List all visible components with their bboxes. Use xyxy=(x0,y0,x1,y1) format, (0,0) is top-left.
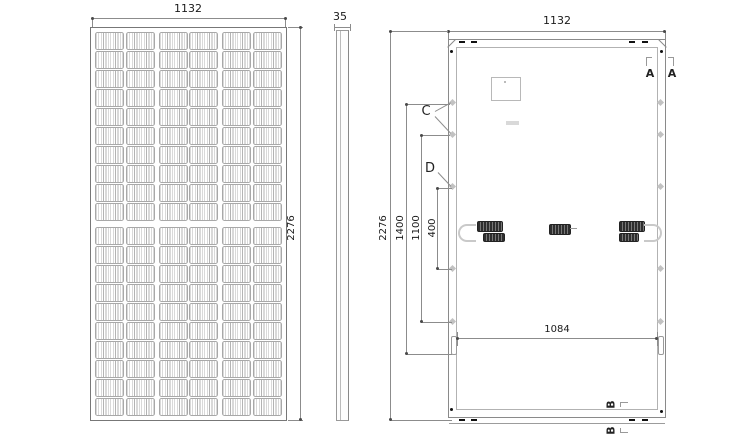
dim-extension xyxy=(421,135,450,136)
solar-cell xyxy=(159,341,188,359)
dim-tick xyxy=(389,418,392,421)
solar-cell xyxy=(222,146,251,164)
section-bracket xyxy=(668,57,674,66)
solar-cell xyxy=(126,146,155,164)
cell-row xyxy=(95,322,282,340)
mounting-slot xyxy=(642,419,648,421)
solar-cell xyxy=(95,379,124,397)
solar-cell xyxy=(189,146,218,164)
solar-cell xyxy=(222,70,251,88)
solar-cell xyxy=(159,108,188,126)
cell-row xyxy=(95,32,282,50)
dim-tick xyxy=(456,337,459,340)
solar-cell xyxy=(253,146,282,164)
solar-cell xyxy=(253,32,282,50)
solar-cell xyxy=(189,379,218,397)
solar-cell xyxy=(95,108,124,126)
section-label-a: A xyxy=(666,67,678,80)
dim-tick xyxy=(420,134,423,137)
dim-extension xyxy=(406,354,452,355)
solar-cell xyxy=(126,165,155,183)
dim-tick xyxy=(405,103,408,106)
solar-cell xyxy=(189,89,218,107)
dim-tick xyxy=(436,187,439,190)
mounting-slot xyxy=(629,41,635,43)
cell-row xyxy=(95,246,282,264)
solar-cell xyxy=(126,341,155,359)
solar-cell xyxy=(126,127,155,145)
solar-cell xyxy=(95,127,124,145)
solar-cell xyxy=(222,303,251,321)
solar-cell xyxy=(222,227,251,245)
cell-row xyxy=(95,203,282,221)
solar-cell xyxy=(159,70,188,88)
solar-cell xyxy=(222,108,251,126)
mc4-connector xyxy=(619,221,645,232)
solar-cell xyxy=(159,360,188,378)
side-thickness-dimension: 35 xyxy=(328,10,352,23)
cell-grid xyxy=(95,32,282,416)
mounting-slot xyxy=(629,419,635,421)
mounting-slot xyxy=(471,41,477,43)
cell-row xyxy=(95,184,282,202)
solar-cell xyxy=(159,265,188,283)
solar-cell xyxy=(159,284,188,302)
solar-cell xyxy=(126,203,155,221)
solar-cell xyxy=(253,227,282,245)
solar-cell xyxy=(222,51,251,69)
dim-1084-line xyxy=(457,338,658,339)
solar-cell xyxy=(95,184,124,202)
solar-cell xyxy=(159,227,188,245)
solar-cell xyxy=(189,127,218,145)
solar-cell xyxy=(189,51,218,69)
solar-cell xyxy=(253,127,282,145)
solar-cell xyxy=(222,184,251,202)
mc4-connector xyxy=(477,221,503,232)
solar-cell xyxy=(253,398,282,416)
dim-1100-label: 1100 xyxy=(411,208,423,248)
solar-cell xyxy=(126,70,155,88)
mounting-slot-long xyxy=(658,336,664,355)
front-width-dimension: 1132 xyxy=(161,2,215,15)
solar-cell xyxy=(95,265,124,283)
solar-cell xyxy=(253,265,282,283)
solar-cell xyxy=(159,146,188,164)
solar-cell xyxy=(222,32,251,50)
dim-extension xyxy=(334,24,335,31)
solar-cell xyxy=(159,398,188,416)
back-width-dimension: 1132 xyxy=(529,14,585,27)
cell-row xyxy=(95,398,282,416)
junction-box xyxy=(491,77,521,101)
solar-cell xyxy=(159,127,188,145)
detail-label-c: C xyxy=(419,104,433,119)
cable-loop xyxy=(458,224,476,242)
solar-cell xyxy=(189,284,218,302)
solar-cell xyxy=(189,303,218,321)
cell-row xyxy=(95,341,282,359)
solar-panel-technical-drawing: 1132 2276 35 1132 xyxy=(0,0,750,440)
solar-cell xyxy=(189,184,218,202)
solar-cell xyxy=(253,184,282,202)
dim-extension xyxy=(421,322,452,323)
cable-loop xyxy=(644,224,662,242)
cell-row xyxy=(95,127,282,145)
solar-cell xyxy=(222,89,251,107)
drain-hole xyxy=(450,50,453,53)
section-label-a: A xyxy=(644,67,656,80)
solar-cell xyxy=(222,322,251,340)
section-label-b: B xyxy=(605,399,618,411)
solar-cell xyxy=(253,322,282,340)
dim-tick xyxy=(420,320,423,323)
solar-cell xyxy=(126,322,155,340)
cell-row xyxy=(95,89,282,107)
solar-cell xyxy=(189,246,218,264)
drain-hole xyxy=(660,410,663,413)
cell-grid-upper-half xyxy=(95,32,282,222)
solar-cell xyxy=(126,360,155,378)
cell-row xyxy=(95,51,282,69)
solar-cell xyxy=(222,341,251,359)
solar-cell xyxy=(126,265,155,283)
solar-cell xyxy=(95,89,124,107)
solar-cell xyxy=(95,203,124,221)
dim-extension xyxy=(437,269,452,270)
solar-cell xyxy=(126,398,155,416)
solar-cell xyxy=(95,32,124,50)
dim-400-label: 400 xyxy=(427,208,439,248)
back-height-dimension: 2276 xyxy=(378,208,390,248)
solar-cell xyxy=(95,398,124,416)
dim-extension xyxy=(390,420,452,421)
solar-cell xyxy=(222,165,251,183)
solar-cell xyxy=(95,341,124,359)
solar-cell xyxy=(126,227,155,245)
dim-tick xyxy=(655,337,658,340)
mounting-slot xyxy=(642,41,648,43)
solar-cell xyxy=(189,165,218,183)
solar-cell xyxy=(126,184,155,202)
solar-cell xyxy=(189,265,218,283)
solar-cell xyxy=(222,203,251,221)
dim-extension xyxy=(390,31,448,32)
solar-cell xyxy=(95,246,124,264)
solar-cell xyxy=(126,303,155,321)
dim-extension xyxy=(437,188,452,189)
solar-cell xyxy=(159,184,188,202)
cell-row xyxy=(95,108,282,126)
section-bracket xyxy=(620,428,628,433)
dim-tick xyxy=(663,30,666,33)
solar-cell xyxy=(253,246,282,264)
bottom-frame-edge-line xyxy=(449,423,665,424)
solar-cell xyxy=(222,127,251,145)
solar-cell xyxy=(95,360,124,378)
solar-cell xyxy=(253,360,282,378)
cell-grid-lower-half xyxy=(95,227,282,417)
dim-tick xyxy=(299,418,302,421)
solar-cell xyxy=(253,341,282,359)
cell-row xyxy=(95,265,282,283)
dim-tick xyxy=(405,352,408,355)
solar-cell xyxy=(253,284,282,302)
cable-stub xyxy=(570,228,577,229)
dim-tick xyxy=(91,17,94,20)
solar-cell xyxy=(253,203,282,221)
solar-cell xyxy=(189,227,218,245)
barcode-label xyxy=(506,121,519,125)
cell-row xyxy=(95,227,282,245)
solar-cell xyxy=(189,32,218,50)
cell-row xyxy=(95,360,282,378)
solar-cell xyxy=(253,379,282,397)
detail-label-d: D xyxy=(423,161,437,176)
solar-cell xyxy=(159,203,188,221)
solar-cell xyxy=(126,246,155,264)
cell-row xyxy=(95,70,282,88)
drain-hole xyxy=(660,50,663,53)
solar-cell xyxy=(95,284,124,302)
junction-box-mark xyxy=(504,81,506,83)
cell-row xyxy=(95,284,282,302)
solar-cell xyxy=(189,203,218,221)
solar-cell xyxy=(126,51,155,69)
solar-cell xyxy=(126,108,155,126)
front-view-panel xyxy=(90,27,287,421)
solar-cell xyxy=(126,284,155,302)
dim-tick xyxy=(389,30,392,33)
solar-cell xyxy=(126,89,155,107)
cell-row xyxy=(95,146,282,164)
solar-cell xyxy=(95,303,124,321)
solar-cell xyxy=(222,265,251,283)
mounting-slot xyxy=(459,419,465,421)
back-width-dim-line xyxy=(448,31,666,32)
mounting-slot xyxy=(459,41,465,43)
cell-row xyxy=(95,379,282,397)
solar-cell xyxy=(159,246,188,264)
dim-tick xyxy=(299,26,302,29)
solar-cell xyxy=(253,303,282,321)
section-label-b: B xyxy=(605,425,618,437)
solar-cell xyxy=(159,379,188,397)
solar-cell xyxy=(189,341,218,359)
solar-cell xyxy=(189,70,218,88)
solar-cell xyxy=(189,398,218,416)
solar-cell xyxy=(95,227,124,245)
mc4-connector xyxy=(483,233,505,242)
solar-cell xyxy=(159,165,188,183)
solar-cell xyxy=(189,108,218,126)
cell-row xyxy=(95,303,282,321)
solar-cell xyxy=(126,379,155,397)
solar-cell xyxy=(189,360,218,378)
solar-cell xyxy=(222,379,251,397)
solar-cell xyxy=(253,165,282,183)
dim-1084-label: 1084 xyxy=(535,324,579,335)
solar-cell xyxy=(222,284,251,302)
solar-cell xyxy=(159,322,188,340)
solar-cell xyxy=(95,51,124,69)
solar-cell xyxy=(159,303,188,321)
solar-cell xyxy=(253,108,282,126)
solar-cell xyxy=(189,322,218,340)
dim-tick xyxy=(284,17,287,20)
back-height-dim-line xyxy=(390,31,391,420)
mounting-slot xyxy=(471,419,477,421)
section-bracket xyxy=(620,402,628,407)
mc4-connector xyxy=(619,233,639,242)
mc4-connector xyxy=(549,224,571,235)
dim-extension xyxy=(350,24,351,31)
solar-cell xyxy=(95,322,124,340)
dim-tick xyxy=(436,267,439,270)
drain-hole xyxy=(450,408,453,411)
solar-cell xyxy=(253,51,282,69)
solar-cell xyxy=(95,165,124,183)
section-bracket xyxy=(646,57,652,66)
solar-cell xyxy=(222,360,251,378)
side-view-profile xyxy=(336,30,349,421)
side-dim-line xyxy=(334,27,351,28)
solar-cell xyxy=(222,246,251,264)
solar-cell xyxy=(159,51,188,69)
front-height-dimension: 2276 xyxy=(286,208,298,248)
solar-cell xyxy=(253,89,282,107)
front-height-dim-line xyxy=(300,27,301,421)
solar-cell xyxy=(159,32,188,50)
solar-cell xyxy=(222,398,251,416)
side-profile-inner-line xyxy=(340,31,341,420)
front-width-dim-line xyxy=(92,18,286,19)
cell-row xyxy=(95,165,282,183)
dim-1400-label: 1400 xyxy=(395,208,407,248)
solar-cell xyxy=(95,146,124,164)
solar-cell xyxy=(95,70,124,88)
solar-cell xyxy=(159,89,188,107)
solar-cell xyxy=(126,32,155,50)
solar-cell xyxy=(253,70,282,88)
